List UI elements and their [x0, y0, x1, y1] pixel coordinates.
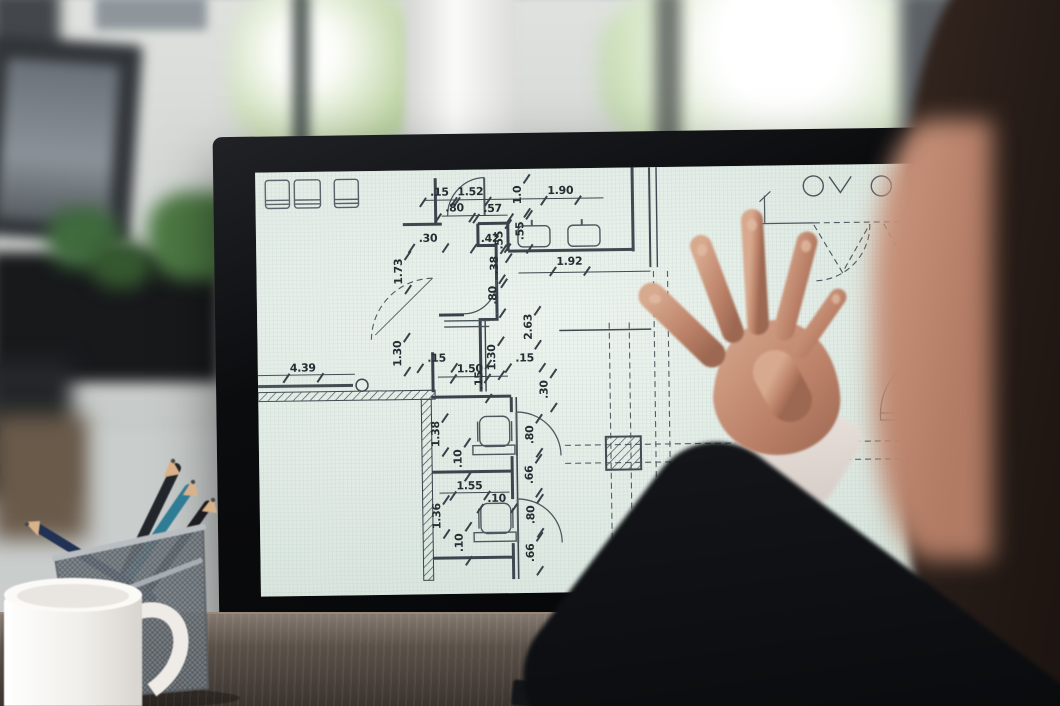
dimension-tick [535, 414, 543, 424]
dimension-label: .80 [523, 425, 536, 444]
dimension-label: .55 [513, 222, 526, 241]
dimension-tick [419, 197, 427, 207]
dimension-tick [550, 402, 558, 412]
dimension-label: .15 [427, 352, 446, 365]
dimension-tick [497, 336, 505, 346]
office-photo-scene: .151.521.90.80.57.30.421.924.39.151.50.1… [0, 0, 1060, 706]
dimension-tick [403, 366, 411, 376]
dimension-label: .80 [445, 201, 464, 214]
dimension-label: .30 [537, 380, 550, 399]
dimension-label: .15 [430, 185, 449, 198]
dimension-tick [403, 332, 411, 342]
dimension-label: 1.52 [457, 185, 483, 198]
dimension-tick [485, 393, 493, 403]
dimension-tick [510, 503, 518, 513]
potted-plant [92, 240, 150, 288]
dimension-label: .55 [492, 231, 505, 250]
dimension-tick [404, 284, 412, 294]
dimension-tick [574, 195, 582, 205]
dimension-tick [536, 566, 544, 576]
dimension-tick [549, 368, 557, 378]
dimension-tick [536, 532, 544, 542]
dimension-label: 1.73 [392, 259, 405, 285]
dimension-label: .80 [524, 505, 537, 524]
dimension-tick [316, 373, 324, 383]
dimension-tick [526, 244, 534, 254]
dimension-label: .66 [523, 465, 536, 484]
dimension-tick [442, 243, 450, 253]
dimension-label: .38 [488, 256, 501, 275]
dimension-tick [463, 438, 471, 448]
dimension-tick [499, 308, 507, 318]
dimension-label: 1.92 [556, 255, 582, 268]
dimension-tick [416, 363, 424, 373]
dimension-tick [505, 253, 513, 263]
dimension-tick [441, 413, 449, 423]
dimension-label: .80 [486, 286, 499, 305]
dimension-tick [497, 370, 505, 380]
dimension-label: 1.36 [430, 503, 443, 529]
background-frame [0, 415, 87, 540]
dimension-label: 1.30 [391, 341, 404, 367]
dimension-tick [583, 266, 591, 276]
wall-frame [95, 0, 207, 30]
dimension-label: 1.38 [429, 421, 442, 447]
dimension-label: 2.63 [522, 314, 535, 340]
dimension-label: 1.90 [547, 184, 573, 197]
dimension-tick [538, 363, 546, 373]
dimension-tick [523, 174, 531, 184]
dimension-tick [404, 250, 412, 260]
dimension-tick [504, 363, 512, 373]
dimension-tick [434, 213, 442, 223]
dimension-tick [476, 503, 484, 513]
dimension-tick [534, 306, 542, 316]
woman-face-profile [872, 120, 992, 560]
dimension-tick [465, 556, 473, 566]
dimension-tick [443, 529, 451, 539]
dimension-label: 1.55 [456, 479, 482, 492]
dimension-label: .10 [451, 449, 464, 468]
dimension-label: .15 [472, 371, 485, 390]
dimension-tick [470, 244, 478, 254]
dimension-tick [442, 447, 450, 457]
dimension-label: .10 [453, 533, 466, 552]
dimension-label: .66 [524, 543, 537, 562]
dimension-label: .57 [483, 202, 502, 215]
background-monitor-screen [0, 58, 119, 225]
dimension-tick [504, 219, 512, 229]
dimension-label: 4.39 [290, 361, 316, 374]
dimension-label: .10 [487, 492, 506, 505]
dimension-label: 1.0 [511, 186, 524, 205]
dimension-label: .15 [515, 351, 534, 364]
dimension-tick [465, 522, 473, 532]
dimension-tick [534, 340, 542, 350]
dimension-label: .30 [419, 232, 438, 245]
dimension-label: 1.30 [485, 344, 498, 370]
